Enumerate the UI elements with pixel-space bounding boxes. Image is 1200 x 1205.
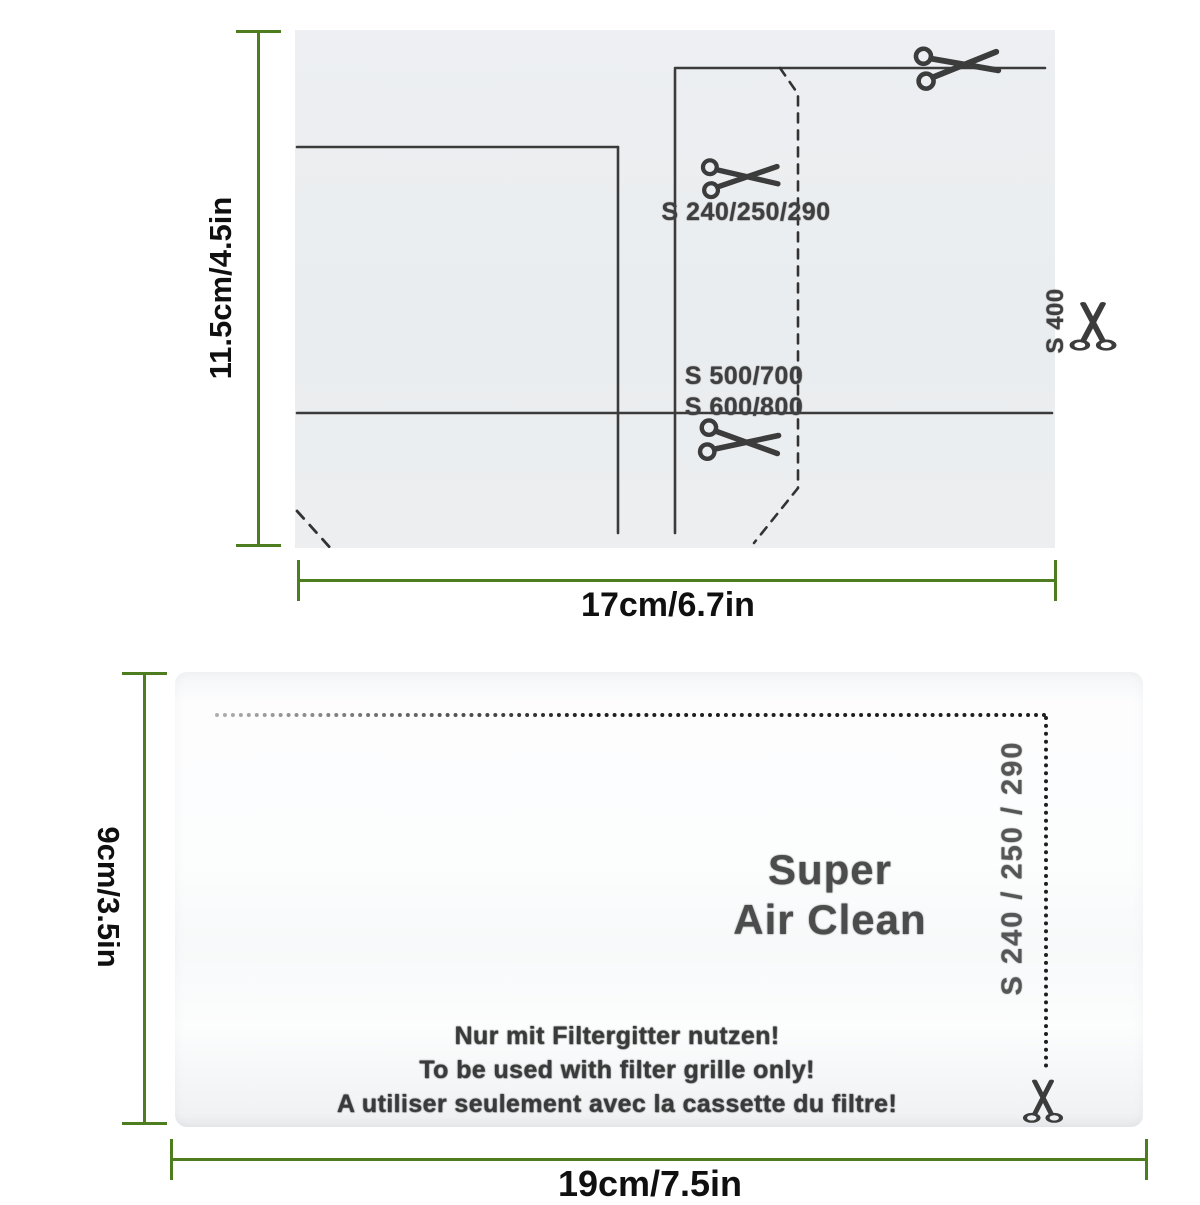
- side-cut-size-label: S 240 / 250 / 290: [997, 741, 1030, 996]
- scissors-icon: [1018, 1077, 1068, 1123]
- cut-size-label: S 240/250/290: [661, 198, 830, 227]
- dotted-cut-line-vertical: [1044, 716, 1048, 1068]
- product-dimension-image: { "top_diagram": { "cut_line_1_label": "…: [0, 0, 1200, 1200]
- dotted-cut-line-horizontal: [215, 713, 1047, 717]
- height-dimension-line: [257, 30, 260, 547]
- height-dimension-label: 11.5cm/4.5in: [203, 197, 239, 380]
- width-dimension-line: [297, 579, 1057, 582]
- scissors-icon: [696, 152, 790, 203]
- width-dimension-line: [170, 1158, 1148, 1161]
- width-dimension-label: 19cm/7.5in: [558, 1163, 742, 1205]
- cut-lines-drawing: [295, 30, 1055, 548]
- width-dimension-label: 17cm/6.7in: [581, 586, 755, 625]
- super-air-clean-filter-photo: Super Air Clean S 240 / 250 / 290 Nur mi…: [175, 672, 1143, 1127]
- height-dimension-line: [143, 672, 146, 1125]
- scissors-icon: [910, 35, 1011, 95]
- usage-note-en: To be used with filter grille only!: [167, 1053, 1067, 1087]
- height-dimension-label: 9cm/3.5in: [90, 826, 126, 967]
- cut-size-label-vertical: S 400: [1042, 288, 1070, 353]
- cut-size-label: S 500/700: [685, 362, 804, 391]
- usage-note-de: Nur mit Filtergitter nutzen!: [167, 1019, 1067, 1053]
- scissors-icon: [693, 415, 790, 469]
- brand-line-1: Super: [655, 845, 1005, 895]
- cut-size-label: S 600/800: [685, 393, 804, 422]
- filter-sheet-photo: S 240/250/290 S 500/700 S 600/800 S 400 …: [295, 30, 1055, 548]
- brand-line-2: Air Clean: [655, 895, 1005, 945]
- brand-text: Super Air Clean: [655, 845, 1005, 945]
- usage-note-fr: A utiliser seulement avec la cassette du…: [167, 1087, 1067, 1121]
